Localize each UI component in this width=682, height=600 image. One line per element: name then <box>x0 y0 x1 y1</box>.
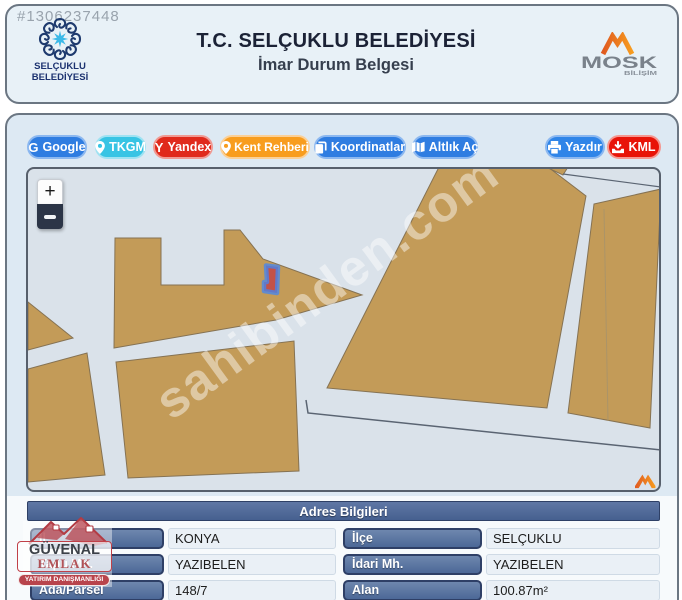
svg-text:MOSK: MOSK <box>581 53 658 72</box>
svg-text:BİLİŞİM: BİLİŞİM <box>624 70 658 76</box>
